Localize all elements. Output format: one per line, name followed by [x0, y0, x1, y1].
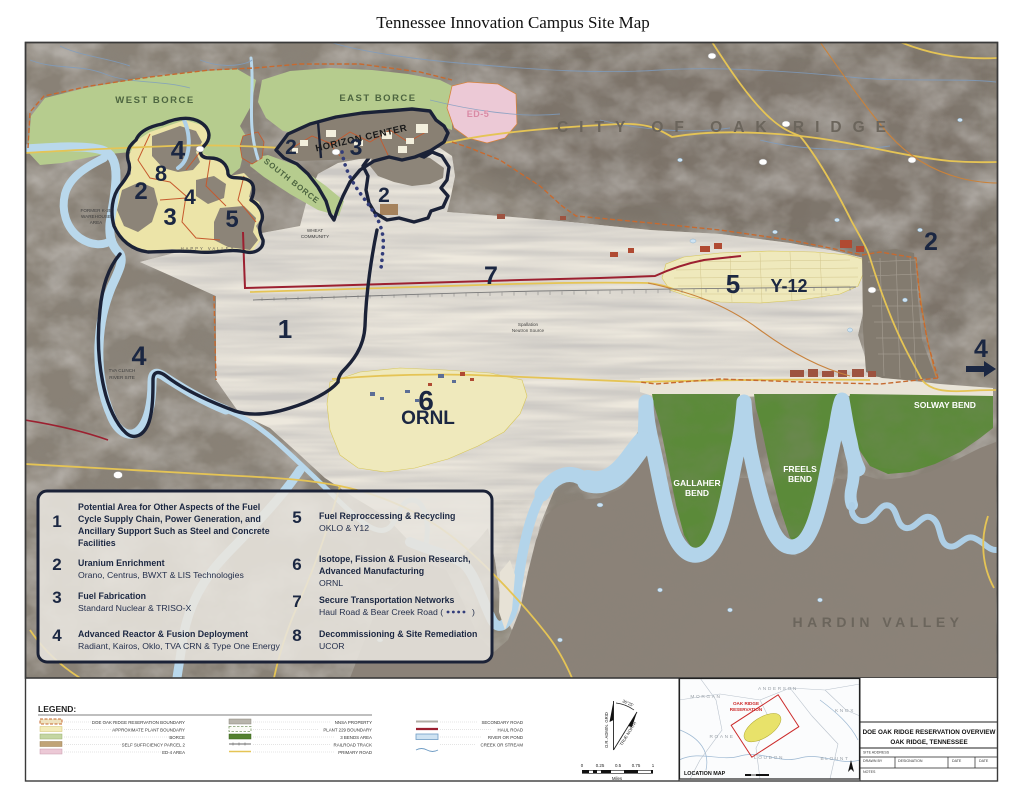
- svg-text:3: 3: [163, 204, 176, 231]
- svg-text:Facilities: Facilities: [78, 538, 116, 548]
- svg-text:Cycle Supply Chain, Power Gene: Cycle Supply Chain, Power Generation, an…: [78, 514, 261, 524]
- svg-text:Orano, Centrus, BWXT & LIS Tec: Orano, Centrus, BWXT & LIS Technologies: [78, 570, 244, 580]
- svg-text:8: 8: [155, 161, 167, 186]
- svg-text:RESERVATION: RESERVATION: [730, 707, 763, 712]
- svg-text:HAUL ROAD: HAUL ROAD: [498, 728, 523, 733]
- svg-text:ED-4 AREA: ED-4 AREA: [162, 750, 185, 755]
- svg-text:ROANE: ROANE: [709, 734, 734, 740]
- svg-text:LOUDON: LOUDON: [754, 755, 784, 761]
- svg-text:OAK RIDGE, TENNESSEE: OAK RIDGE, TENNESSEE: [890, 739, 967, 746]
- svg-text:PRIMARY ROAD: PRIMARY ROAD: [338, 750, 372, 755]
- svg-text:Fuel Fabrication: Fuel Fabrication: [78, 591, 146, 601]
- svg-text:CITY OF OAK RIDGE: CITY OF OAK RIDGE: [557, 119, 897, 136]
- svg-text:Standard Nuclear & TRISO-X: Standard Nuclear & TRISO-X: [78, 603, 192, 613]
- svg-text:NNSA PROPERTY: NNSA PROPERTY: [335, 720, 372, 725]
- svg-text:7: 7: [292, 592, 301, 611]
- svg-text:AREA: AREA: [90, 220, 103, 225]
- svg-text:WAREHOUSE: WAREHOUSE: [81, 214, 111, 219]
- svg-text:2: 2: [52, 555, 61, 574]
- svg-text:1: 1: [52, 512, 61, 531]
- svg-text:RAILROAD TRACK: RAILROAD TRACK: [334, 743, 373, 748]
- svg-text:0.5: 0.5: [615, 763, 622, 768]
- svg-text:SOLWAY BEND: SOLWAY BEND: [914, 400, 976, 410]
- svg-text:0.25: 0.25: [596, 763, 605, 768]
- svg-text:RIVER OR POND: RIVER OR POND: [488, 735, 523, 740]
- svg-text:4: 4: [131, 341, 146, 371]
- svg-text:DATE: DATE: [979, 759, 989, 763]
- svg-text:FORMER K-25: FORMER K-25: [81, 208, 112, 213]
- svg-text:8: 8: [292, 626, 301, 645]
- svg-text:2: 2: [134, 178, 147, 205]
- svg-text:ED-5: ED-5: [467, 109, 490, 119]
- svg-text:BORCE: BORCE: [169, 735, 185, 740]
- svg-text:Tennessee Innovation Campus Si: Tennessee Innovation Campus Site Map: [376, 13, 650, 32]
- svg-text:5: 5: [225, 206, 238, 233]
- svg-text:GALLAHER: GALLAHER: [673, 478, 720, 488]
- svg-text:2: 2: [285, 136, 297, 159]
- svg-text:WHEAT: WHEAT: [307, 228, 323, 233]
- svg-text:7: 7: [484, 262, 498, 290]
- svg-text:Ancillary Support Such as Stee: Ancillary Support Such as Steel and Conc…: [78, 526, 270, 536]
- svg-text:DRAWN BY: DRAWN BY: [863, 759, 883, 763]
- svg-text:Isotope, Fission & Fusion Rese: Isotope, Fission & Fusion Research,: [319, 554, 471, 564]
- svg-text:BEND: BEND: [685, 488, 709, 498]
- svg-text:DESIGNATION: DESIGNATION: [898, 759, 923, 763]
- svg-text:4: 4: [52, 626, 62, 645]
- svg-text:DATE: DATE: [952, 759, 962, 763]
- svg-text:): ): [472, 607, 475, 617]
- svg-text:UCOR: UCOR: [319, 641, 345, 651]
- svg-text:Y-12: Y-12: [770, 276, 807, 296]
- svg-text:LEGEND:: LEGEND:: [38, 704, 76, 714]
- svg-text:NOTES: NOTES: [863, 770, 876, 774]
- svg-text:Haul Road & Bear Creek Road (: Haul Road & Bear Creek Road (: [319, 607, 443, 617]
- svg-text:WEST BORCE: WEST BORCE: [115, 95, 194, 106]
- svg-text:ORNL: ORNL: [319, 578, 343, 588]
- svg-text:4: 4: [974, 335, 988, 363]
- svg-text:2: 2: [378, 184, 390, 207]
- svg-text:3: 3: [52, 588, 61, 607]
- svg-text:OAK RIDGE: OAK RIDGE: [733, 701, 759, 706]
- svg-text:HARDIN VALLEY: HARDIN VALLEY: [792, 614, 963, 630]
- svg-text:COMMUNITY: COMMUNITY: [301, 234, 329, 239]
- svg-text:Radiant, Kairos, Oklo, TVA CRN: Radiant, Kairos, Oklo, TVA CRN & Type On…: [78, 641, 280, 651]
- svg-text:ORNL: ORNL: [401, 408, 455, 429]
- svg-text:ANDERSON: ANDERSON: [758, 686, 798, 692]
- svg-text:5: 5: [292, 508, 301, 527]
- svg-text:Spallation: Spallation: [518, 322, 539, 327]
- svg-text:DOE OAK RIDGE RESERVATION BOUN: DOE OAK RIDGE RESERVATION BOUNDARY: [92, 720, 185, 725]
- svg-text:1: 1: [278, 314, 292, 344]
- svg-text:0.75: 0.75: [632, 763, 641, 768]
- svg-text:MORGAN: MORGAN: [690, 694, 721, 700]
- svg-text:FREELS: FREELS: [783, 464, 817, 474]
- svg-text:HAPPY VALLEY: HAPPY VALLEY: [181, 246, 236, 251]
- svg-text:Neutron Source: Neutron Source: [512, 328, 545, 333]
- svg-text:SELF SUFFICIENCY PARCEL 2: SELF SUFFICIENCY PARCEL 2: [122, 743, 186, 748]
- svg-text:2: 2: [924, 228, 938, 256]
- svg-text:SITE ADDRESS: SITE ADDRESS: [863, 751, 890, 755]
- svg-text:LOCATION MAP: LOCATION MAP: [684, 771, 726, 777]
- svg-text:Potential Area for Other Aspec: Potential Area for Other Aspects of the …: [78, 502, 260, 512]
- svg-text:4: 4: [184, 186, 196, 209]
- svg-text:Decommissioning & Site Remedia: Decommissioning & Site Remediation: [319, 629, 477, 639]
- svg-text:Advanced Reactor & Fusion Depl: Advanced Reactor & Fusion Deployment: [78, 629, 248, 639]
- svg-text:RIVER SITE: RIVER SITE: [109, 375, 135, 380]
- svg-text:3: 3: [350, 134, 363, 160]
- svg-text:BEND: BEND: [788, 474, 812, 484]
- svg-text:Fuel Reproccessing & Recycling: Fuel Reproccessing & Recycling: [319, 511, 455, 521]
- svg-text:APPROXIMATE PLANT BOUNDARY: APPROXIMATE PLANT BOUNDARY: [112, 728, 185, 733]
- svg-text:O.R. ADMIN. GRID: O.R. ADMIN. GRID: [604, 712, 609, 748]
- svg-text:CREEK OR STREAM: CREEK OR STREAM: [481, 743, 524, 748]
- svg-text:SECONDARY ROAD: SECONDARY ROAD: [481, 720, 523, 725]
- svg-text:OKLO & Y12: OKLO & Y12: [319, 523, 369, 533]
- svg-text:DOE OAK RIDGE RESERVATION OVER: DOE OAK RIDGE RESERVATION OVERVIEW: [863, 729, 996, 736]
- svg-text:Advanced Manufacturing: Advanced Manufacturing: [319, 566, 424, 576]
- svg-text:Miles: Miles: [612, 776, 623, 781]
- svg-text:BLOUNT: BLOUNT: [820, 756, 849, 762]
- svg-text:EAST BORCE: EAST BORCE: [339, 93, 416, 104]
- svg-text:3 BENDS AREA: 3 BENDS AREA: [340, 735, 372, 740]
- svg-text:KNOX: KNOX: [835, 708, 855, 714]
- svg-text:Uranium Enrichment: Uranium Enrichment: [78, 558, 165, 568]
- svg-text:Secure Transportation Networks: Secure Transportation Networks: [319, 595, 455, 605]
- svg-text:5: 5: [726, 269, 740, 299]
- svg-text:6: 6: [292, 555, 301, 574]
- svg-text:PLANT 229 BOUNDARY: PLANT 229 BOUNDARY: [323, 728, 372, 733]
- svg-text:4: 4: [171, 135, 186, 165]
